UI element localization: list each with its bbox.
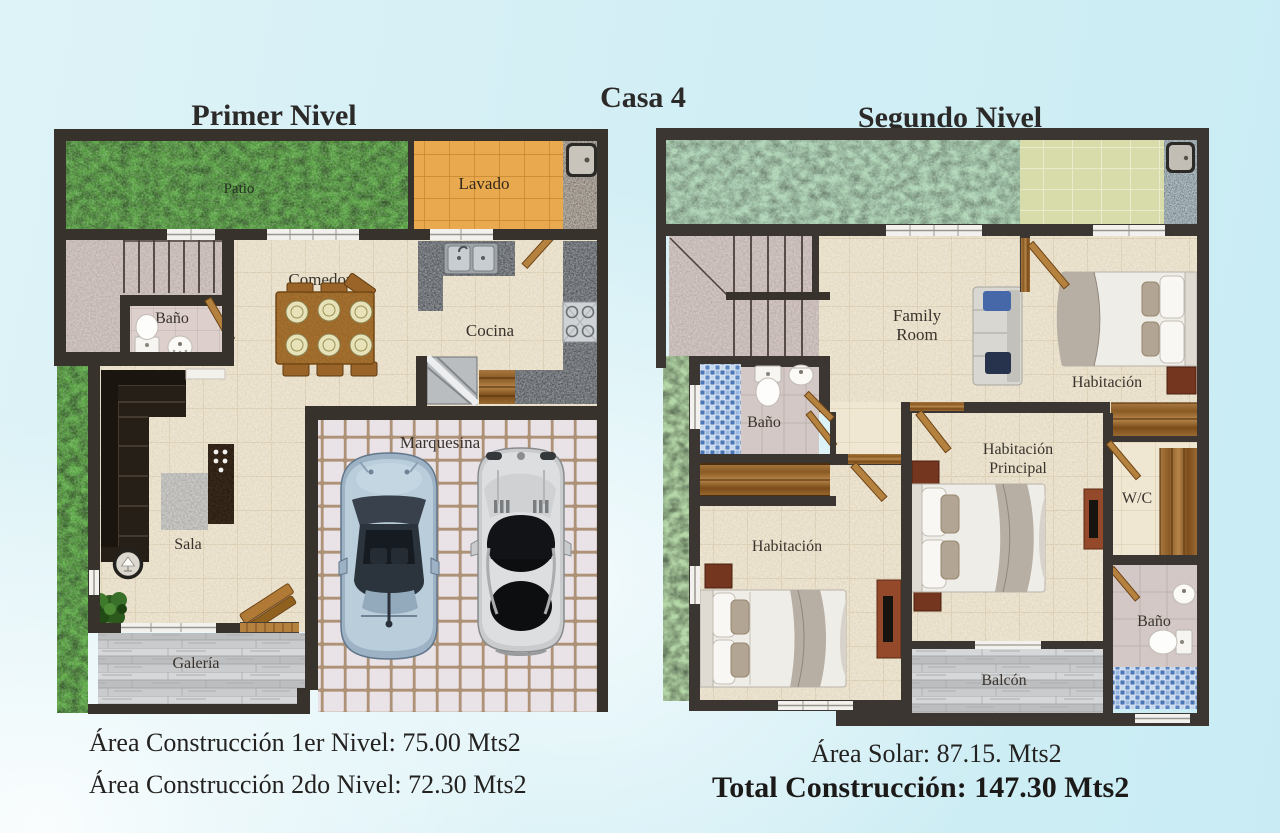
- svg-text:Habitación: Habitación: [752, 538, 822, 555]
- svg-text:Habitación: Habitación: [1072, 374, 1142, 391]
- svg-text:Cocina: Cocina: [466, 321, 515, 340]
- svg-text:Área Solar: 87.15. Mts2: Área Solar: 87.15. Mts2: [811, 739, 1062, 768]
- svg-text:Baño: Baño: [155, 310, 189, 327]
- svg-text:Patio: Patio: [224, 181, 255, 197]
- svg-text:Área Construcción 2do Nivel: 7: Área Construcción 2do Nivel: 72.30 Mts2: [89, 770, 527, 799]
- svg-text:Marquesina: Marquesina: [400, 433, 481, 452]
- svg-text:Total Construcción: 147.30 Mts: Total Construcción: 147.30 Mts2: [712, 771, 1129, 804]
- svg-text:Baño: Baño: [747, 414, 781, 431]
- svg-text:Family: Family: [893, 306, 942, 325]
- svg-text:Baño: Baño: [1137, 613, 1171, 630]
- svg-text:Habitación: Habitación: [983, 441, 1053, 458]
- svg-text:Primer Nivel: Primer Nivel: [191, 99, 356, 132]
- svg-text:Sala: Sala: [174, 536, 202, 553]
- svg-text:Área Construcción 1er Nivel: 7: Área Construcción 1er Nivel: 75.00 Mts2: [89, 728, 521, 757]
- svg-text:Room: Room: [896, 325, 938, 344]
- svg-text:Galería: Galería: [172, 655, 219, 672]
- svg-text:Principal: Principal: [989, 460, 1047, 477]
- svg-text:Casa 4: Casa 4: [600, 81, 686, 114]
- svg-text:W/C: W/C: [1122, 490, 1152, 507]
- svg-text:Balcón: Balcón: [981, 672, 1026, 689]
- svg-text:Lavado: Lavado: [459, 174, 510, 193]
